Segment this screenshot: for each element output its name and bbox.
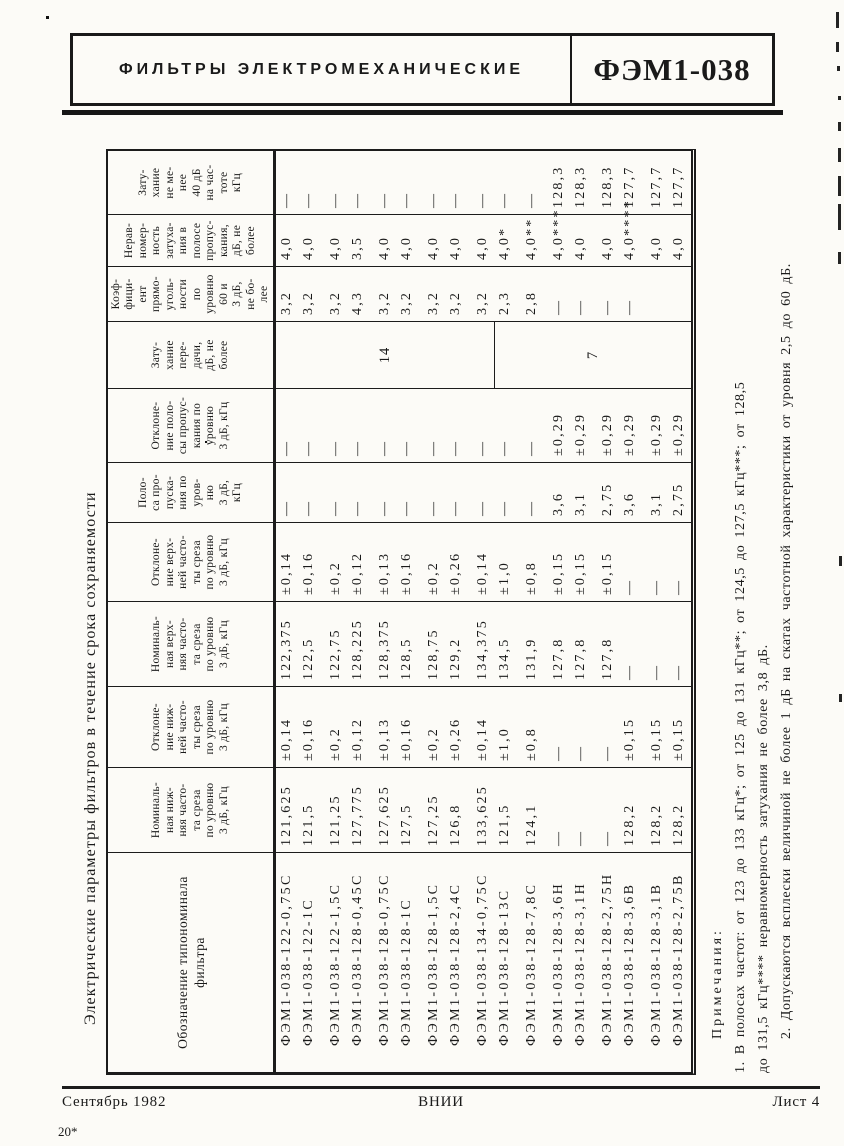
value-cell: 4,0 [325, 215, 347, 266]
value-cell: — [276, 463, 298, 522]
value-cell: — [548, 267, 570, 321]
value-cell: 4,0*** [548, 215, 570, 266]
value-cell: 4,0 [472, 215, 494, 266]
filter-designation: ФЭМ1-038-128-2,75Н [597, 853, 619, 1072]
value-cell: ±0,15 [619, 687, 641, 767]
filter-designation: ФЭМ1-038-128-1,5С [423, 853, 445, 1072]
value-cell: — [597, 768, 619, 852]
value-cell: ±1,0 [494, 523, 516, 601]
value-cell: ±0,16 [298, 523, 320, 601]
value-cell: — [494, 389, 516, 462]
column-header-transfer_attenuation: Зату- хание пере- дачи, дБ, не более [108, 322, 276, 388]
footer-organization: ВНИИ [292, 1094, 590, 1111]
value-cell: 4,0**** [619, 215, 641, 266]
value-cell: ±0,26 [445, 687, 467, 767]
value-cell: — [374, 389, 396, 462]
value-cell: — [298, 463, 320, 522]
value-cell: — [570, 267, 592, 321]
value-cell: ±0,15 [668, 687, 690, 767]
value-cell: 133,625 [472, 768, 494, 852]
press-mark: 20* [58, 1124, 78, 1140]
value-cell: 4,0** [521, 215, 543, 266]
value-cell: — [472, 151, 494, 214]
column-header-upper_cutoff_deviation: Отклоне- ние верх- ней часто- ты среза п… [108, 523, 276, 601]
column-cells-nominal_upper_cutoff: 122,375122,5122,75128,225128,375128,5128… [276, 602, 690, 686]
column-designation: Обозначение типономинала фильтраФЭМ1-038… [108, 852, 691, 1072]
value-cell: — [396, 463, 418, 522]
column-transfer_attenuation: Зату- хание пере- дачи, дБ, не более147 [108, 321, 691, 388]
filter-designation: ФЭМ1-038-128-7,8С [521, 853, 543, 1072]
value-cell: 121,5 [298, 768, 320, 852]
value-cell: — [472, 463, 494, 522]
value-cell: ±0,12 [347, 687, 369, 767]
value-cell: — [423, 389, 445, 462]
filter-designation: ФЭМ1-038-128-2,75В [668, 853, 690, 1072]
value-cell: 121,5 [494, 768, 516, 852]
value-cell: ±1,0 [494, 687, 516, 767]
table-caption: Электрические параметры фильтров в течен… [80, 139, 102, 1025]
value-cell: ±0,29 [597, 389, 619, 462]
value-cell: 3,2 [396, 267, 418, 321]
value-cell: — [276, 389, 298, 462]
column-nominal_upper_cutoff: Номиналь- ная верх- няя часто- та среза … [108, 601, 691, 686]
value-cell [668, 267, 690, 321]
value-cell: 128,5 [396, 602, 418, 686]
column-cells-lower_cutoff_deviation: ±0,14±0,16±0,2±0,12±0,13±0,16±0,2±0,26±0… [276, 687, 690, 767]
value-cell: — [619, 267, 641, 321]
value-cell: — [396, 151, 418, 214]
document-code: ФЭМ1-038 [593, 52, 750, 88]
value-cell: ±0,13 [374, 523, 396, 601]
value-cell: 4,0 [597, 215, 619, 266]
value-cell: — [396, 389, 418, 462]
value-cell: — [668, 602, 690, 686]
value-cell: ±0,15 [646, 687, 668, 767]
document-page: ФИЛЬТРЫ ЭЛЕКТРОМЕХАНИЧЕСКИЕ ФЭМ1-038 Эле… [0, 0, 844, 1146]
value-cell: 122,75 [325, 602, 347, 686]
scan-edge-mark [836, 12, 839, 28]
column-cells-passband: ———————————3,63,12,753,63,12,75 [276, 463, 690, 522]
value-cell: 2,8 [521, 267, 543, 321]
value-cell: — [521, 389, 543, 462]
value-cell: — [325, 151, 347, 214]
scan-edge-mark [838, 148, 841, 162]
header-rule [62, 110, 783, 115]
title-box-left: ФИЛЬТРЫ ЭЛЕКТРОМЕХАНИЧЕСКИЕ [73, 36, 570, 103]
value-cell: 134,375 [472, 602, 494, 686]
value-cell: ±0,16 [396, 523, 418, 601]
note-line: 2. Допускаются всплески величиной не бол… [775, 139, 798, 1073]
value-cell: 129,2 [445, 602, 467, 686]
title-box-right: ФЭМ1-038 [570, 36, 772, 103]
value-cell: ±0,2 [325, 687, 347, 767]
value-cell: ±0,14 [276, 523, 298, 601]
value-cell: ±0,16 [298, 687, 320, 767]
footer-date: Сентябрь 1982 [62, 1094, 292, 1111]
filter-designation: ФЭМ1-038-128-3,6В [619, 853, 641, 1072]
value-cell: 127,8 [597, 602, 619, 686]
value-cell: ±0,29 [668, 389, 690, 462]
value-cell: 3,6 [548, 463, 570, 522]
value-cell: ±0,13 [374, 687, 396, 767]
value-cell: — [445, 389, 467, 462]
filter-designation: ФЭМ1-038-128-13С [494, 853, 516, 1072]
value-cell: — [570, 768, 592, 852]
value-cell: 4,0 [445, 215, 467, 266]
value-cell: 4,0 [423, 215, 445, 266]
value-cell: ±0,29 [570, 389, 592, 462]
title-box: ФИЛЬТРЫ ЭЛЕКТРОМЕХАНИЧЕСКИЕ ФЭМ1-038 [70, 33, 775, 106]
column-attenuation_40db_frequency: Зату- хание не ме- нее 40 дБ на час- тот… [108, 151, 691, 214]
value-cell: — [276, 151, 298, 214]
value-cell: — [423, 463, 445, 522]
value-cell: — [445, 463, 467, 522]
value-cell: 3,5 [347, 215, 369, 266]
value-cell: 122,375 [276, 602, 298, 686]
value-cell: — [445, 151, 467, 214]
value-cell: 128,225 [347, 602, 369, 686]
filter-designation: ФЭМ1-038-122-1,5С [325, 853, 347, 1072]
value-cell: 4,0 [570, 215, 592, 266]
value-cell: — [548, 768, 570, 852]
value-cell: ±0,15 [597, 523, 619, 601]
value-cell: 2,75 [668, 463, 690, 522]
value-cell: 3,2 [325, 267, 347, 321]
column-cells-designation: ФЭМ1-038-122-0,75СФЭМ1-038-122-1СФЭМ1-03… [276, 853, 690, 1072]
value-cell: ±0,29 [646, 389, 668, 462]
value-cell: — [347, 463, 369, 522]
value-cell: 4,3 [347, 267, 369, 321]
value-cell: ±0,14 [472, 523, 494, 601]
value-cell: — [597, 267, 619, 321]
scan-edge-mark [838, 122, 841, 131]
column-header-nominal_lower_cutoff: Номиналь- ная ниж- няя часто- та среза п… [108, 768, 276, 852]
value-cell: — [494, 151, 516, 214]
value-cell: 127,8 [548, 602, 570, 686]
column-header-lower_cutoff_deviation: Отклоне- ние ниж- ней часто- ты среза по… [108, 687, 276, 767]
column-header-attenuation_40db_frequency: Зату- хание не ме- нее 40 дБ на час- тот… [108, 151, 276, 214]
value-cell: — [347, 389, 369, 462]
value-cell: 2,75 [597, 463, 619, 522]
value-cell: 127,7 [646, 151, 668, 214]
value-cell: 3,1 [646, 463, 668, 522]
column-cells-attenuation_40db_frequency: ———————————128,3128,3128,3127,7127,7127,… [276, 151, 690, 214]
value-cell: 128,2 [668, 768, 690, 852]
column-cells-upper_cutoff_deviation: ±0,14±0,16±0,2±0,12±0,13±0,16±0,2±0,26±0… [276, 523, 690, 601]
value-cell: — [646, 523, 668, 601]
column-rectangularity_coefficient: Коэф- фици- ент прямо- уголь- ности по у… [108, 266, 691, 321]
value-cell: 3,2 [276, 267, 298, 321]
value-cell: — [521, 463, 543, 522]
value-cell: — [619, 602, 641, 686]
value-cell: 128,2 [646, 768, 668, 852]
value-cell: ±0,29 [548, 389, 570, 462]
value-cell: 4,0 [646, 215, 668, 266]
parameters-table: Обозначение типономинала фильтраФЭМ1-038… [106, 149, 696, 1075]
value-cell: 128,375 [374, 602, 396, 686]
value-cell: 4,0 [668, 215, 690, 266]
value-cell: 3,1 [570, 463, 592, 522]
value-cell: 131,9 [521, 602, 543, 686]
value-cell: — [374, 463, 396, 522]
value-cell: — [597, 687, 619, 767]
value-cell: ±0,12 [347, 523, 369, 601]
column-header-designation: Обозначение типономинала фильтра [108, 853, 276, 1072]
filter-designation: ФЭМ1-038-122-1С [298, 853, 320, 1072]
footer: Сентябрь 1982 ВНИИ Лист 4 [62, 1094, 820, 1111]
value-cell: 128,75 [423, 602, 445, 686]
scan-edge-mark [839, 556, 842, 566]
value-cell: — [570, 687, 592, 767]
scan-edge-mark [838, 204, 841, 230]
value-cell: 128,2 [619, 768, 641, 852]
scan-edge-mark [838, 96, 841, 100]
rotated-sheet: Электрические параметры фильтров в течен… [80, 139, 786, 1075]
filter-designation: ФЭМ1-038-128-2,4С [445, 853, 467, 1072]
column-header-passband: Поло- са про- пуска- ния по уров- ню 3 д… [108, 463, 276, 522]
value-cell: ±0,15 [548, 523, 570, 601]
filter-designation: ФЭМ1-038-128-3,6Н [548, 853, 570, 1072]
value-cell: ±0,16 [396, 687, 418, 767]
value-cell: 121,625 [276, 768, 298, 852]
value-cell: — [646, 602, 668, 686]
column-passband_deviation: Отклоне- ние поло- сы пропус- кания по у… [108, 388, 691, 462]
column-cells-nominal_lower_cutoff: 121,625121,5121,25127,775127,625127,5127… [276, 768, 690, 852]
value-cell: ±0,14 [276, 687, 298, 767]
filter-designation: ФЭМ1-038-128-3,1Н [570, 853, 592, 1072]
value-cell: 3,2 [298, 267, 320, 321]
filter-designation: ФЭМ1-038-128-0,45С [347, 853, 369, 1072]
notes: Примечания: 1. В полосах частот: от 123 … [706, 139, 798, 1073]
column-upper_cutoff_deviation: Отклоне- ние верх- ней часто- ты среза п… [108, 522, 691, 601]
value-cell: 128,3 [570, 151, 592, 214]
value-cell: — [325, 389, 347, 462]
value-cell: 4,0 [396, 215, 418, 266]
value-cell: 127,25 [423, 768, 445, 852]
value-cell: ±0,2 [423, 523, 445, 601]
value-cell: — [521, 151, 543, 214]
value-cell: 3,6 [619, 463, 641, 522]
footer-sheet-number: Лист 4 [590, 1094, 820, 1111]
value-cell: ±0,26 [445, 523, 467, 601]
value-cell: ±0,8 [521, 687, 543, 767]
value-cell: 121,25 [325, 768, 347, 852]
value-cell: — [423, 151, 445, 214]
value-cell: 4,0 [374, 215, 396, 266]
value-cell: ±0,14 [472, 687, 494, 767]
value-cell: 3,2 [445, 267, 467, 321]
value-cell: — [668, 523, 690, 601]
value-cell: ±0,29 [619, 389, 641, 462]
column-nominal_lower_cutoff: Номиналь- ная ниж- няя часто- та среза п… [108, 767, 691, 852]
value-cell: 128,3 [548, 151, 570, 214]
note-line: до 131,5 кГц**** неравномерность затухан… [752, 139, 775, 1073]
note-line: Примечания: 1. В полосах частот: от 123 … [706, 139, 752, 1073]
column-cells-passband_deviation: ———————————±0,29±0,29±0,29±0,29±0,29±0,2… [276, 389, 690, 462]
column-cells-transfer_attenuation: 147 [276, 322, 691, 388]
value-cell: ±0,2 [423, 687, 445, 767]
document-title: ФИЛЬТРЫ ЭЛЕКТРОМЕХАНИЧЕСКИЕ [119, 61, 524, 79]
value-cell: — [619, 523, 641, 601]
column-header-rectangularity_coefficient: Коэф- фици- ент прямо- уголь- ности по у… [108, 267, 276, 321]
value-cell: 4,0 [298, 215, 320, 266]
value-cell: 128,3 [597, 151, 619, 214]
filter-designation: ФЭМ1-038-128-1С [396, 853, 418, 1072]
scan-edge-mark [837, 66, 840, 71]
value-cell: — [347, 151, 369, 214]
column-header-passband_deviation: Отклоне- ние поло- сы пропус- кания по у… [108, 389, 276, 462]
column-cells-attenuation_unevenness: 4,04,04,03,54,04,04,04,04,04,0*4,0**4,0*… [276, 215, 690, 266]
value-cell: 4,0 [276, 215, 298, 266]
value-cell: 2,3 [494, 267, 516, 321]
value-cell: 126,8 [445, 768, 467, 852]
value-cell: 124,1 [521, 768, 543, 852]
value-cell: — [548, 687, 570, 767]
value-cell: 127,7 [619, 151, 641, 214]
value-cell: 4,0* [494, 215, 516, 266]
value-cell: 122,5 [298, 602, 320, 686]
filter-designation: ФЭМ1-038-128-0,75С [374, 853, 396, 1072]
value-cell: ±0,15 [570, 523, 592, 601]
value-cell: — [494, 463, 516, 522]
value-cell: 127,625 [374, 768, 396, 852]
value-cell: — [298, 151, 320, 214]
column-cells-rectangularity_coefficient: 3,23,23,24,33,23,23,23,23,22,32,8———— [276, 267, 690, 321]
value-cell: 134,5 [494, 602, 516, 686]
value-cell: ±0,8 [521, 523, 543, 601]
column-passband: Поло- са про- пуска- ния по уров- ню 3 д… [108, 462, 691, 522]
scan-edge-mark [836, 42, 839, 52]
value-cell: ±0,2 [325, 523, 347, 601]
note-label: Примечания: [706, 139, 729, 1073]
value-cell: 3,2 [472, 267, 494, 321]
merged-cell-rows-1-9: 14 [276, 322, 494, 388]
value-cell: 3,2 [423, 267, 445, 321]
column-header-attenuation_unevenness: Нерав- номер- ность затуха- ния в полосе… [108, 215, 276, 266]
rotated-sheet-area: Электрические параметры фильтров в течен… [80, 139, 786, 1075]
scan-edge-mark [839, 694, 842, 702]
filter-designation: ФЭМ1-038-128-3,1В [646, 853, 668, 1072]
column-header-nominal_upper_cutoff: Номиналь- ная верх- няя часто- та среза … [108, 602, 276, 686]
value-cell: — [298, 389, 320, 462]
value-cell: 127,7 [668, 151, 690, 214]
value-cell: — [374, 151, 396, 214]
scan-speck [205, 441, 207, 443]
value-cell: — [325, 463, 347, 522]
value-cell [646, 267, 668, 321]
filter-designation: ФЭМ1-038-122-0,75С [276, 853, 298, 1072]
scan-edge-mark [838, 176, 841, 196]
column-attenuation_unevenness: Нерав- номер- ность затуха- ния в полосе… [108, 214, 691, 266]
scan-speck [46, 16, 49, 19]
value-cell: — [472, 389, 494, 462]
filter-designation: ФЭМ1-038-134-0,75С [472, 853, 494, 1072]
value-cell: 3,2 [374, 267, 396, 321]
value-cell: 127,8 [570, 602, 592, 686]
scan-edge-mark [838, 252, 841, 264]
value-cell: 127,775 [347, 768, 369, 852]
column-lower_cutoff_deviation: Отклоне- ние ниж- ней часто- ты среза по… [108, 686, 691, 767]
merged-cell-rows-10-17: 7 [494, 322, 691, 388]
value-cell: 127,5 [396, 768, 418, 852]
footer-rule [62, 1086, 820, 1089]
